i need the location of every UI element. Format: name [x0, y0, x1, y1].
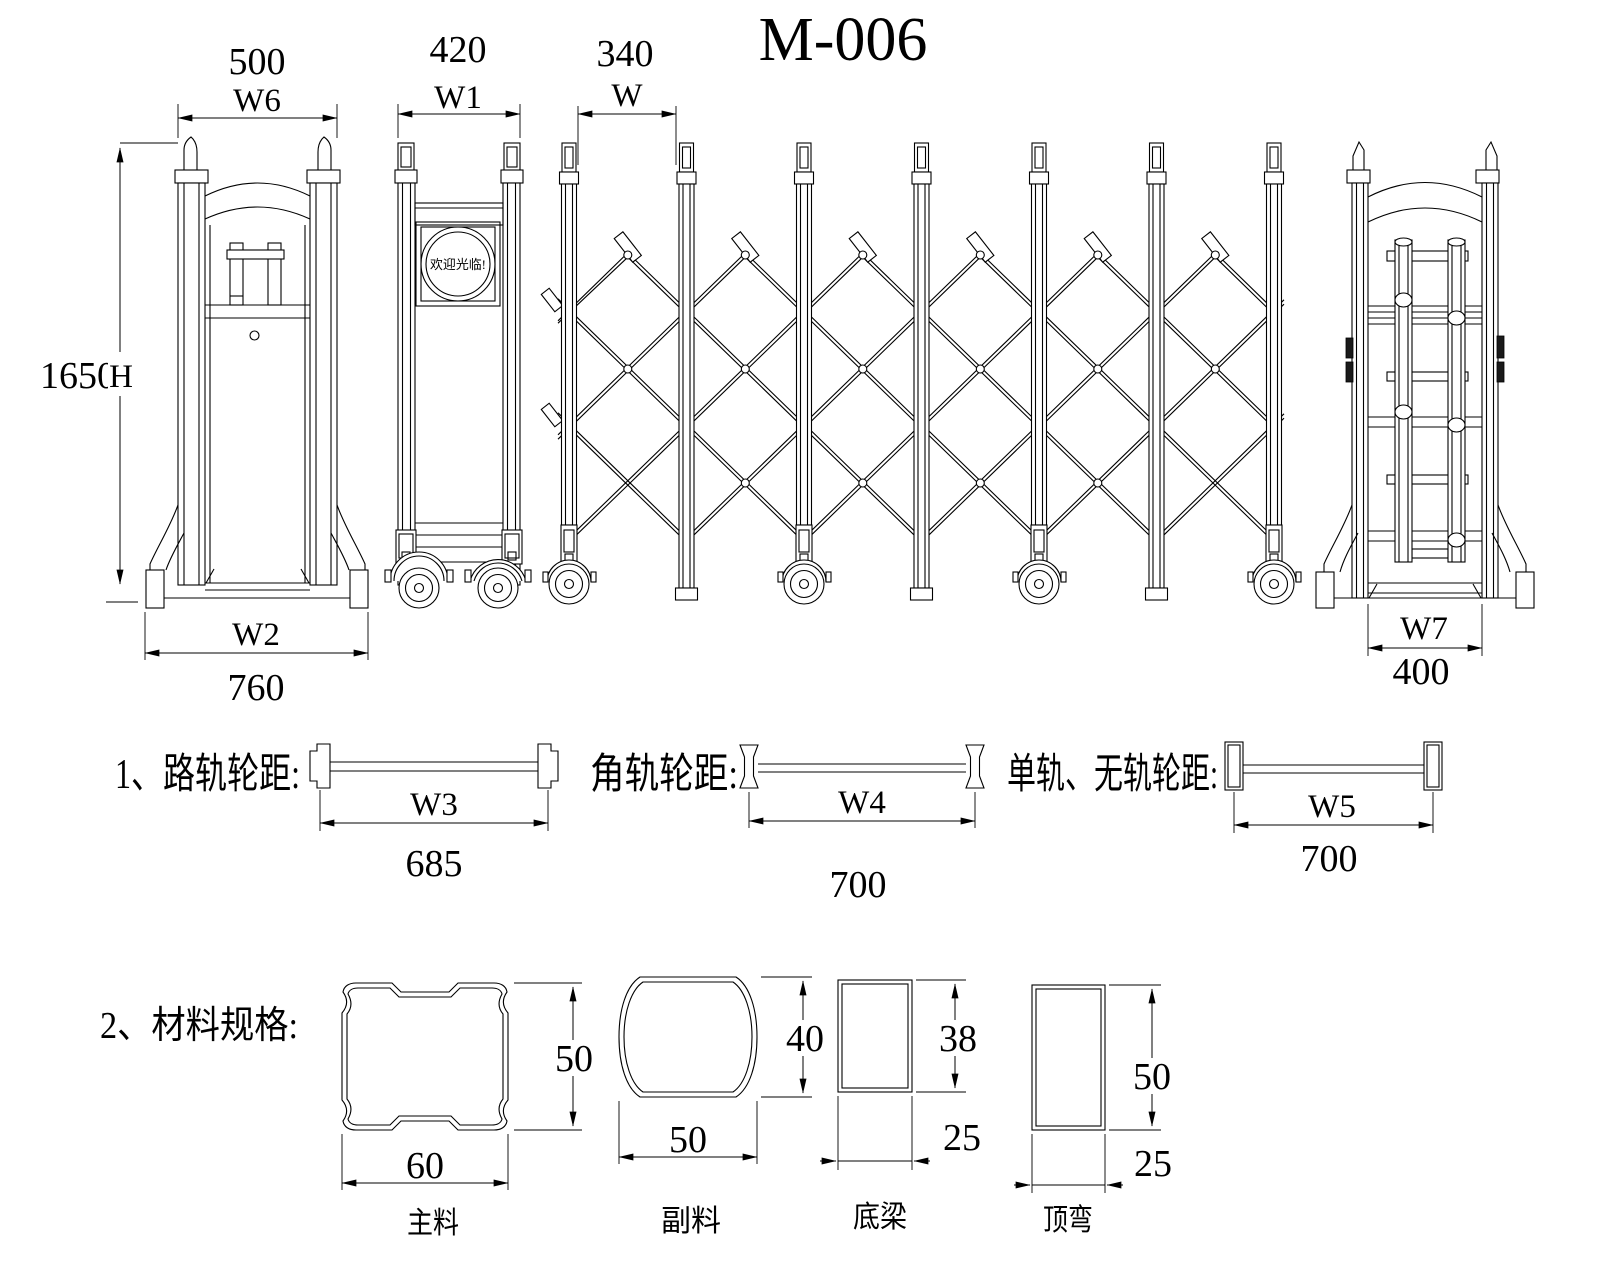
materials-section-label: 2、材料规格: [100, 1005, 298, 1047]
profile-top-bend-name: 顶弯 [1043, 1204, 1093, 1237]
rear-base-label: W7 [1400, 611, 1448, 647]
front-base-value: 760 [228, 667, 285, 709]
track2-dim-label: W4 [838, 785, 886, 821]
gate-upright [778, 143, 831, 604]
track2-label: 角轨轮距: [590, 752, 738, 798]
hinge [1497, 336, 1504, 358]
ladder-tube [1448, 240, 1465, 562]
profile-top-bend-height: 50 [1133, 1056, 1171, 1098]
drawing-title: M-006 [759, 6, 928, 74]
side-view: 420 W1 欢迎光临! [385, 29, 531, 608]
profile-top-bend: 50 25 顶弯 [1014, 985, 1172, 1237]
track-diagram-single-trackless: 单轨、无轨轮距: W5 700 [1007, 742, 1442, 880]
profile-main-width: 60 [406, 1145, 444, 1187]
profile-aux-height: 40 [786, 1018, 824, 1060]
track1-dim-value: 685 [406, 843, 463, 885]
welcome-sign: 欢迎光临! [416, 222, 500, 306]
front-height-label: H [109, 359, 133, 395]
extended-gate-view: 340 W [541, 33, 1301, 604]
track3-dim-label: W5 [1308, 789, 1356, 825]
track-diagram-angle-rail: 角轨轮距: W4 700 [590, 745, 984, 906]
gate-upright [1248, 143, 1301, 604]
profile-bottom-beam-width: 25 [943, 1117, 981, 1159]
profile-bottom-beam-name: 底梁 [853, 1201, 907, 1234]
rear-view: W7 400 [1316, 142, 1534, 693]
rail-wheel [310, 744, 330, 788]
track3-label: 单轨、无轨轮距: [1007, 752, 1218, 798]
track2-dim-value: 700 [830, 864, 887, 906]
drawing-page: M-006 500 W6 1650 H [0, 0, 1600, 1280]
gate-upright [1146, 143, 1168, 600]
gate-upright [1013, 143, 1066, 604]
profile-aux-width: 50 [669, 1119, 707, 1161]
ladder-tube [1395, 240, 1412, 562]
side-width-value: 420 [430, 29, 487, 71]
profile-main-name: 主料 [407, 1207, 459, 1240]
v-groove-wheel [740, 745, 758, 788]
gate-pitch-value: 340 [597, 33, 654, 75]
keyhole [250, 331, 259, 340]
profile-main-height: 50 [555, 1038, 593, 1080]
drawing-canvas: M-006 500 W6 1650 H [0, 0, 1600, 1280]
front-view: 500 W6 1650 H [40, 41, 368, 709]
front-width-label: W6 [233, 83, 281, 119]
hinge [1346, 338, 1353, 358]
track1-dim-label: W3 [410, 787, 458, 823]
front-base-label: W2 [232, 617, 280, 653]
profile-bottom-beam: 38 25 底梁 [820, 980, 981, 1234]
pivot-tabs [541, 232, 1229, 427]
gate-pitch-label: W [611, 78, 643, 114]
profile-bottom-beam-height: 38 [939, 1018, 977, 1060]
welcome-sign-text: 欢迎光临! [430, 257, 486, 272]
front-height-value: 1650 [40, 355, 116, 397]
gate-upright [543, 143, 596, 604]
gate-upright [911, 143, 933, 600]
profile-aux-name: 副料 [661, 1205, 721, 1238]
profile-top-bend-width: 25 [1134, 1143, 1172, 1185]
gate-upright [676, 143, 698, 600]
track3-dim-value: 700 [1301, 838, 1358, 880]
material-profiles: 2、材料规格: 50 60 主料 40 [100, 977, 1172, 1240]
track-diagram-road-rail: 1、路轨轮距: W3 685 [115, 744, 558, 885]
rear-base-value: 400 [1393, 651, 1450, 693]
track1-label: 1、路轨轮距: [115, 752, 300, 798]
front-width-value: 500 [229, 41, 286, 83]
profile-main: 50 60 主料 [342, 983, 593, 1240]
profile-aux: 40 50 副料 [619, 977, 824, 1238]
side-width-label: W1 [434, 80, 482, 116]
